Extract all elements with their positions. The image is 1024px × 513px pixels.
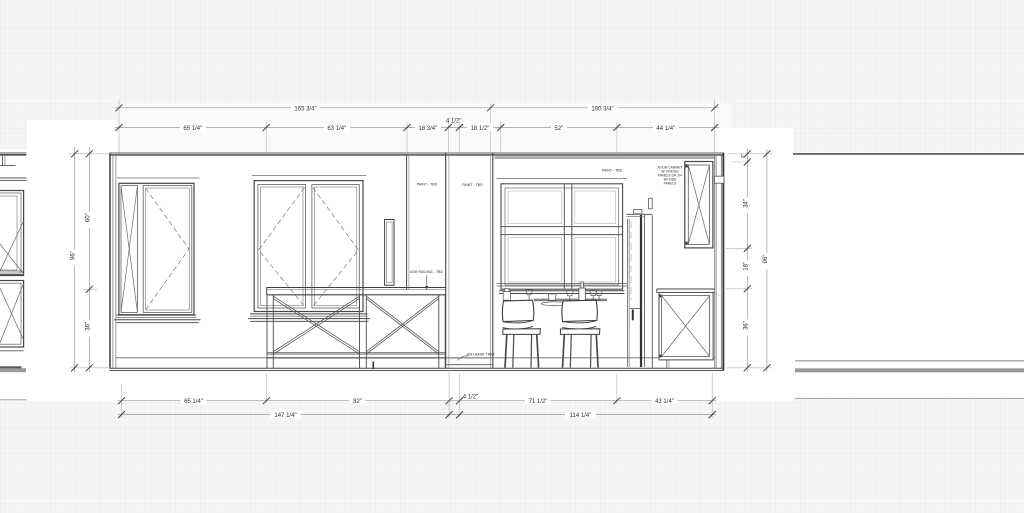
svg-text:100 3/4": 100 3/4" [591,106,613,112]
svg-text:ASH BASE TRIM: ASH BASE TRIM [467,353,495,357]
svg-text:18": 18" [743,262,749,271]
svg-text:65 1/4": 65 1/4" [184,399,203,405]
svg-text:82": 82" [353,399,362,405]
svg-text:36": 36" [743,321,749,330]
svg-text:PANELS: PANELS [664,182,678,186]
svg-text:5": 5" [740,153,745,158]
svg-text:96": 96" [71,251,77,260]
svg-text:18 3/4": 18 3/4" [418,126,437,132]
svg-text:165 3/4": 165 3/4" [294,106,316,112]
svg-text:PAINT - TBD: PAINT - TBD [462,183,483,187]
svg-text:114 1/4": 114 1/4" [570,413,592,419]
svg-text:36": 36" [85,322,91,331]
svg-text:71 1/2": 71 1/2" [529,399,548,405]
svg-text:63 1/4": 63 1/4" [327,126,346,132]
svg-text:PAINT - TBD: PAINT - TBD [602,169,623,173]
svg-text:ASH RAILING - TBD: ASH RAILING - TBD [410,270,443,274]
svg-text:18 1/2": 18 1/2" [471,126,490,132]
svg-text:52": 52" [554,126,563,132]
svg-text:96": 96" [763,254,769,263]
svg-text:44 1/4": 44 1/4" [656,126,675,132]
svg-text:43 1/4": 43 1/4" [655,399,674,405]
svg-text:65 1/4": 65 1/4" [183,126,202,132]
svg-text:34": 34" [743,199,749,208]
svg-text:147 1/4": 147 1/4" [274,413,296,419]
svg-text:60": 60" [85,213,91,222]
svg-text:4 1/2": 4 1/2" [463,395,478,401]
svg-text:PAINT - TBD: PAINT - TBD [417,183,438,187]
svg-text:4 1/2": 4 1/2" [446,118,461,124]
